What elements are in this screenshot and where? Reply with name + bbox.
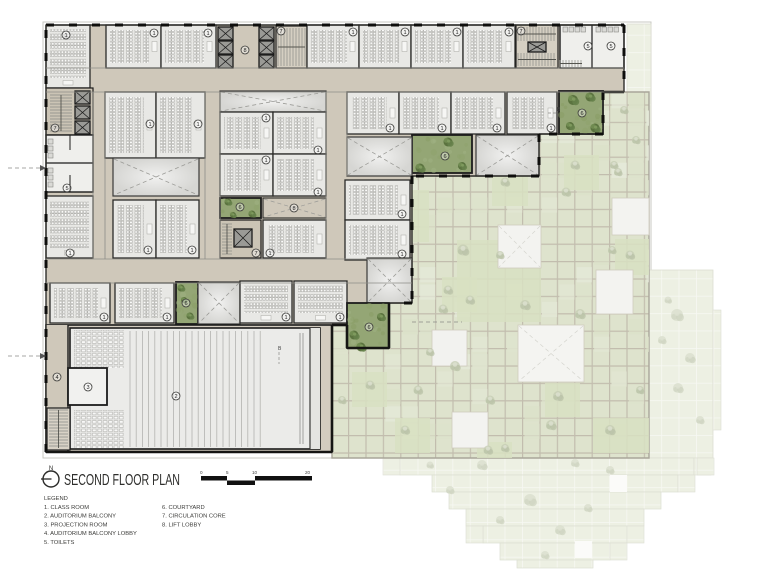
svg-text:1: 1 xyxy=(316,148,319,154)
svg-text:LEGEND: LEGEND xyxy=(44,496,68,502)
svg-text:5: 5 xyxy=(609,44,612,50)
svg-text:1: 1 xyxy=(403,30,406,36)
svg-text:2. AUDITORIUM BALCONY: 2. AUDITORIUM BALCONY xyxy=(44,514,116,520)
svg-text:1: 1 xyxy=(146,248,149,254)
svg-text:4: 4 xyxy=(55,375,58,381)
svg-text:5: 5 xyxy=(65,186,68,192)
svg-text:6: 6 xyxy=(580,111,583,117)
svg-text:1: 1 xyxy=(148,122,151,128)
svg-text:5: 5 xyxy=(586,44,589,50)
svg-text:SECOND FLOOR PLAN: SECOND FLOOR PLAN xyxy=(64,472,180,489)
svg-text:1: 1 xyxy=(455,30,458,36)
svg-text:3. PROJECTION ROOM: 3. PROJECTION ROOM xyxy=(44,522,108,528)
svg-text:1: 1 xyxy=(495,126,498,132)
svg-text:8: 8 xyxy=(243,48,246,54)
svg-text:6: 6 xyxy=(238,205,241,211)
svg-text:6: 6 xyxy=(184,301,187,307)
svg-text:1: 1 xyxy=(190,248,193,254)
svg-text:1: 1 xyxy=(284,315,287,321)
svg-text:7: 7 xyxy=(519,29,522,35)
svg-text:1: 1 xyxy=(152,31,155,37)
svg-text:1: 1 xyxy=(102,315,105,321)
svg-text:6. COURTYARD: 6. COURTYARD xyxy=(162,505,205,511)
svg-text:1. CLASS ROOM: 1. CLASS ROOM xyxy=(44,505,89,511)
svg-text:1: 1 xyxy=(68,251,71,257)
svg-text:8: 8 xyxy=(292,206,295,212)
svg-text:1: 1 xyxy=(400,212,403,218)
svg-text:1: 1 xyxy=(549,126,552,132)
svg-text:8. LIFT LOBBY: 8. LIFT LOBBY xyxy=(162,522,201,528)
svg-text:7: 7 xyxy=(53,126,56,132)
svg-text:1: 1 xyxy=(206,31,209,37)
svg-text:7. CIRCULATION CORE: 7. CIRCULATION CORE xyxy=(162,514,226,520)
svg-text:1: 1 xyxy=(338,315,341,321)
svg-text:1: 1 xyxy=(196,122,199,128)
svg-text:1: 1 xyxy=(351,30,354,36)
svg-text:3: 3 xyxy=(86,385,89,391)
svg-text:N: N xyxy=(49,466,53,472)
svg-text:1: 1 xyxy=(264,116,267,122)
svg-text:1: 1 xyxy=(64,33,67,39)
svg-text:7: 7 xyxy=(279,29,282,35)
svg-text:1: 1 xyxy=(165,315,168,321)
svg-text:4. AUDITORIUM BALCONY LOBBY: 4. AUDITORIUM BALCONY LOBBY xyxy=(44,531,137,537)
svg-text:2: 2 xyxy=(174,394,177,400)
svg-text:6: 6 xyxy=(367,325,370,331)
svg-text:10: 10 xyxy=(252,470,258,475)
svg-text:1: 1 xyxy=(400,252,403,258)
svg-text:1: 1 xyxy=(388,126,391,132)
svg-text:5. TOILETS: 5. TOILETS xyxy=(44,540,75,546)
svg-text:1: 1 xyxy=(316,190,319,196)
svg-text:1: 1 xyxy=(268,251,271,257)
svg-text:7: 7 xyxy=(254,251,257,257)
svg-text:1: 1 xyxy=(507,30,510,36)
svg-text:1: 1 xyxy=(440,126,443,132)
svg-text:5: 5 xyxy=(226,470,229,475)
svg-text:1: 1 xyxy=(264,158,267,164)
svg-text:20: 20 xyxy=(305,470,311,475)
svg-text:0: 0 xyxy=(200,470,203,475)
svg-text:6: 6 xyxy=(443,154,446,160)
